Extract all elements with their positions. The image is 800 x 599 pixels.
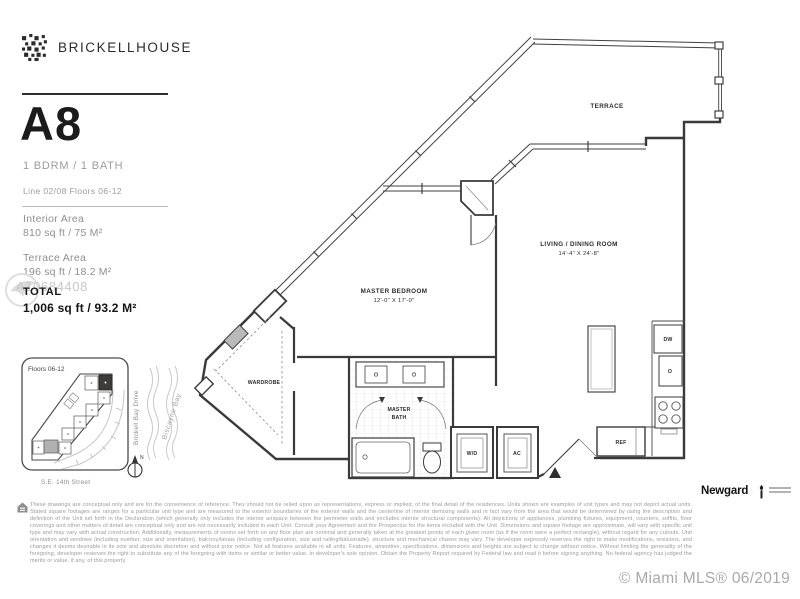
corner-column <box>461 181 493 215</box>
sidebar-divider <box>22 206 168 207</box>
unit-line-floors: Line 02/08 Floors 06-12 <box>23 186 122 196</box>
partner-logo-icon <box>757 485 766 499</box>
brickellhouse-logo-icon <box>22 34 49 61</box>
entry-door <box>544 439 596 474</box>
bath-sink-right <box>403 366 425 383</box>
total-label: TOTAL <box>23 286 62 298</box>
master-bath-label-1: MASTER <box>387 407 410 413</box>
street-bottom-label: S.E. 14th Street <box>41 479 90 486</box>
street-right-label: Brickell Bay Drive <box>133 390 140 445</box>
unit-a8-dot <box>105 382 107 384</box>
header-divider <box>22 93 168 95</box>
equal-housing-icon <box>17 502 28 513</box>
terrace-area-label: Terrace Area <box>23 252 111 264</box>
compass-icon: N <box>128 455 144 477</box>
bedroom-window <box>383 183 461 194</box>
floor-plan-sheet: BRICKELLHOUSE A8 1 BDRM / 1 BATH Line 02… <box>0 0 800 599</box>
refrigerator-label: REF <box>616 440 627 446</box>
wardrobe-label: WARDROBE <box>248 380 281 386</box>
master-bedroom-label: MASTER BEDROOM <box>361 288 428 295</box>
bathtub <box>352 438 414 477</box>
unit-name: A8 <box>20 96 82 151</box>
living-label: LIVING / DINING ROOM <box>540 241 618 248</box>
interior-area-block: Interior Area 810 sq ft / 75 M² <box>23 213 102 239</box>
cooktop-box <box>655 397 683 428</box>
entry-arrow <box>549 467 561 478</box>
brand-name: BRICKELLHOUSE <box>58 40 192 55</box>
kitchen-island <box>588 326 615 392</box>
terrace-parapet <box>533 39 723 118</box>
terrace-label: TERRACE <box>590 103 623 110</box>
legal-disclaimer: These drawings are conceptual only and a… <box>30 502 692 565</box>
master-bedroom-dims: 12'-0" X 17'-0" <box>373 298 414 304</box>
developer-logo-newgard: Newgard <box>701 485 748 497</box>
brand-lockup: BRICKELLHOUSE <box>22 34 192 61</box>
site-key-map: Floors 06-12 S.E. 14th Street Brickell B… <box>14 348 186 494</box>
floor-plan-drawing: TERRACE LIVING / DINING ROOM 14'-4" X 24… <box>180 25 800 495</box>
interior-area-value: 810 sq ft / 75 M² <box>23 227 102 239</box>
mls-credit: © Miami MLS® 06/2019 <box>619 570 790 588</box>
toilet-bowl <box>424 451 441 473</box>
oven-label: O <box>668 369 672 375</box>
bedroom-door <box>471 215 496 245</box>
toilet-tank <box>423 443 441 451</box>
utility-closets <box>451 427 538 478</box>
total-value: 1,006 sq ft / 93.2 M² <box>23 301 137 315</box>
washer-dryer-label: W/D <box>467 451 478 457</box>
interior-area-label: Interior Area <box>23 213 102 225</box>
living-dims: 14'-4" X 24'-8" <box>558 251 599 257</box>
ac-label: AC <box>513 451 521 457</box>
partner-logo <box>757 485 791 499</box>
bath-sink-left <box>365 366 387 383</box>
svg-text:N: N <box>140 455 144 461</box>
unit-cell-shaded <box>44 440 58 453</box>
partner-logo-text <box>769 485 791 493</box>
unit-config: 1 BDRM / 1 BATH <box>23 160 123 172</box>
map-floors-label: Floors 06-12 <box>28 366 65 373</box>
master-bath-label-2: BATH <box>392 415 407 421</box>
dishwasher-label: DW <box>663 337 672 343</box>
living-glass-wall <box>491 141 646 184</box>
